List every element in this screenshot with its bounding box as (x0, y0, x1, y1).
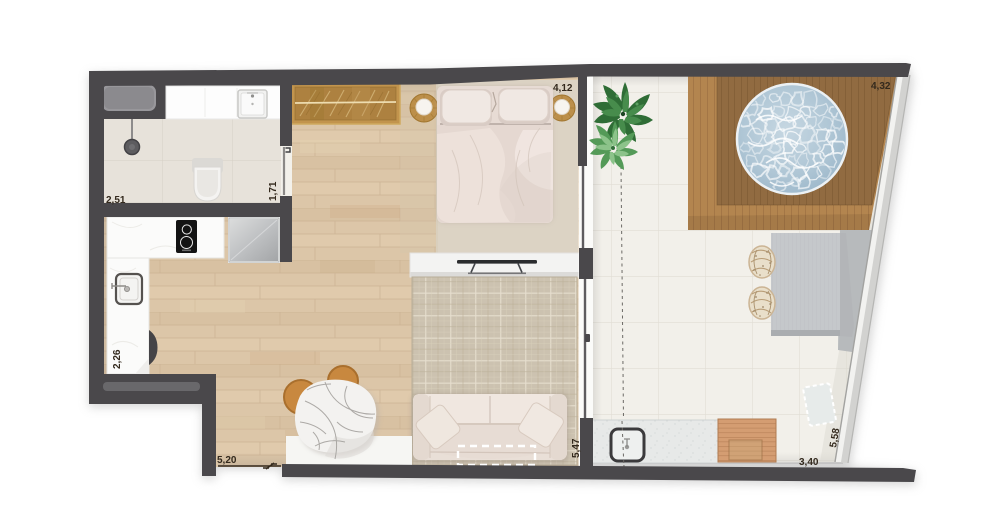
svg-text:5,47: 5,47 (571, 438, 582, 458)
svg-text:3,40: 3,40 (799, 457, 819, 468)
svg-text:4,12: 4,12 (553, 83, 573, 94)
svg-text:2,26: 2,26 (112, 349, 123, 369)
svg-text:5,20: 5,20 (217, 455, 237, 466)
svg-text:2,51: 2,51 (106, 195, 126, 206)
svg-text:4,32: 4,32 (871, 81, 891, 92)
svg-text:1,71: 1,71 (268, 181, 279, 201)
